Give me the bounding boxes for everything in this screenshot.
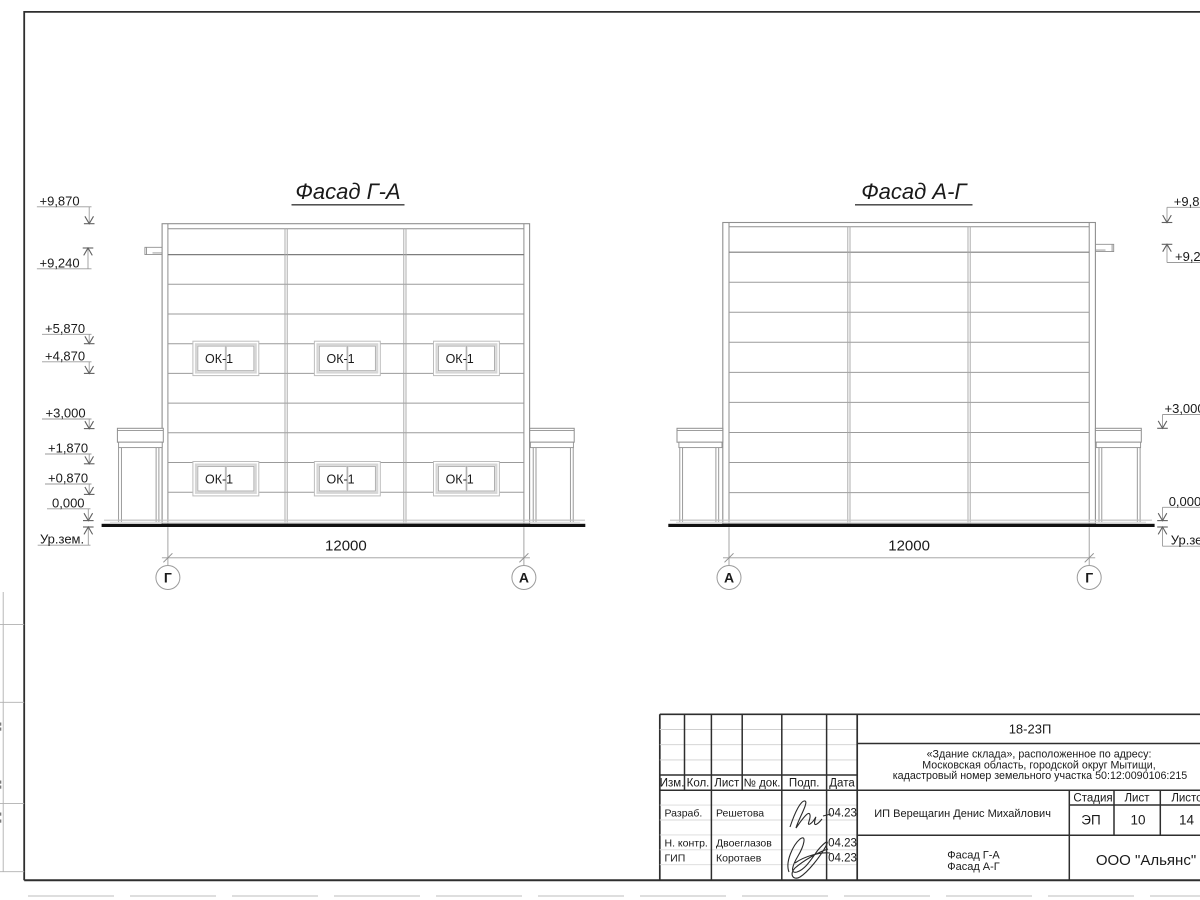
svg-text:+3,000: +3,000: [46, 406, 86, 421]
svg-text:ОК-1: ОК-1: [446, 472, 474, 486]
svg-text:04.23: 04.23: [828, 808, 857, 820]
svg-text:+3,000: +3,000: [1165, 401, 1200, 416]
svg-text:А: А: [724, 570, 734, 586]
svg-text:+9,240: +9,240: [40, 255, 80, 270]
svg-text:ЭП: ЭП: [1081, 813, 1100, 828]
svg-text:18-23П: 18-23П: [1009, 722, 1052, 737]
svg-text:04.23: 04.23: [828, 837, 857, 849]
svg-text:Разраб.: Разраб.: [665, 808, 703, 820]
svg-text:Ур.зем.: Ур.зем.: [1171, 533, 1200, 548]
svg-text:Двоеглазов: Двоеглазов: [716, 837, 772, 849]
svg-text:Листов: Листов: [1171, 793, 1200, 805]
svg-text:0,000: 0,000: [1169, 494, 1200, 509]
svg-text:+9,870: +9,870: [40, 193, 80, 208]
svg-text:ОК-1: ОК-1: [326, 352, 354, 366]
svg-text:0,000: 0,000: [52, 495, 85, 510]
svg-text:Дата: Дата: [829, 777, 855, 789]
svg-text:+4,870: +4,870: [45, 348, 85, 363]
svg-text:12000: 12000: [325, 537, 367, 554]
svg-text:ОК-1: ОК-1: [446, 352, 474, 366]
svg-text:Фасад А-Г: Фасад А-Г: [947, 861, 1000, 873]
svg-text:ОК-1: ОК-1: [205, 352, 233, 366]
svg-text:№ док.: № док.: [744, 777, 781, 789]
svg-text:Решетова: Решетова: [716, 808, 764, 820]
svg-text:Фасад Г-А: Фасад Г-А: [295, 179, 400, 204]
svg-text:Фасад Г-А: Фасад Г-А: [947, 850, 1000, 862]
svg-text:ОК-1: ОК-1: [326, 472, 354, 486]
svg-text:ООО "Альянс": ООО "Альянс": [1096, 852, 1196, 869]
svg-text:Фасад А-Г: Фасад А-Г: [861, 179, 968, 204]
svg-text:+9,870: +9,870: [1174, 194, 1200, 209]
svg-text:Ур.зем.: Ур.зем.: [40, 532, 84, 547]
svg-text:+0,870: +0,870: [48, 471, 88, 486]
svg-text:Г: Г: [1085, 570, 1093, 586]
svg-text:+1,870: +1,870: [48, 441, 88, 456]
svg-text:Н. контр.: Н. контр.: [665, 837, 708, 849]
svg-text:Коротаев: Коротаев: [716, 852, 762, 864]
svg-text:04.23: 04.23: [828, 852, 857, 864]
svg-text:Кол.: Кол.: [687, 777, 710, 789]
svg-text:А: А: [519, 570, 529, 586]
svg-text:Стадия: Стадия: [1073, 793, 1112, 805]
svg-text:кадастровый номер земельного у: кадастровый номер земельного участка 50:…: [893, 770, 1187, 782]
svg-text:+5,870: +5,870: [45, 321, 85, 336]
svg-text:Подп.: Подп.: [789, 777, 820, 789]
svg-text:12000: 12000: [888, 537, 930, 554]
svg-text:ОК-1: ОК-1: [205, 472, 233, 486]
svg-text:10: 10: [1130, 813, 1145, 828]
svg-text:14: 14: [1179, 813, 1195, 828]
svg-text:Лист: Лист: [1125, 793, 1151, 805]
svg-text:+9,240: +9,240: [1175, 249, 1200, 264]
svg-text:ГИП: ГИП: [665, 852, 686, 864]
svg-text:Лист: Лист: [714, 777, 740, 789]
svg-text:Г: Г: [164, 570, 172, 586]
svg-text:ИП Верещагин Денис Михайлович: ИП Верещагин Денис Михайлович: [874, 808, 1051, 820]
svg-text:Изм.: Изм.: [660, 777, 685, 789]
